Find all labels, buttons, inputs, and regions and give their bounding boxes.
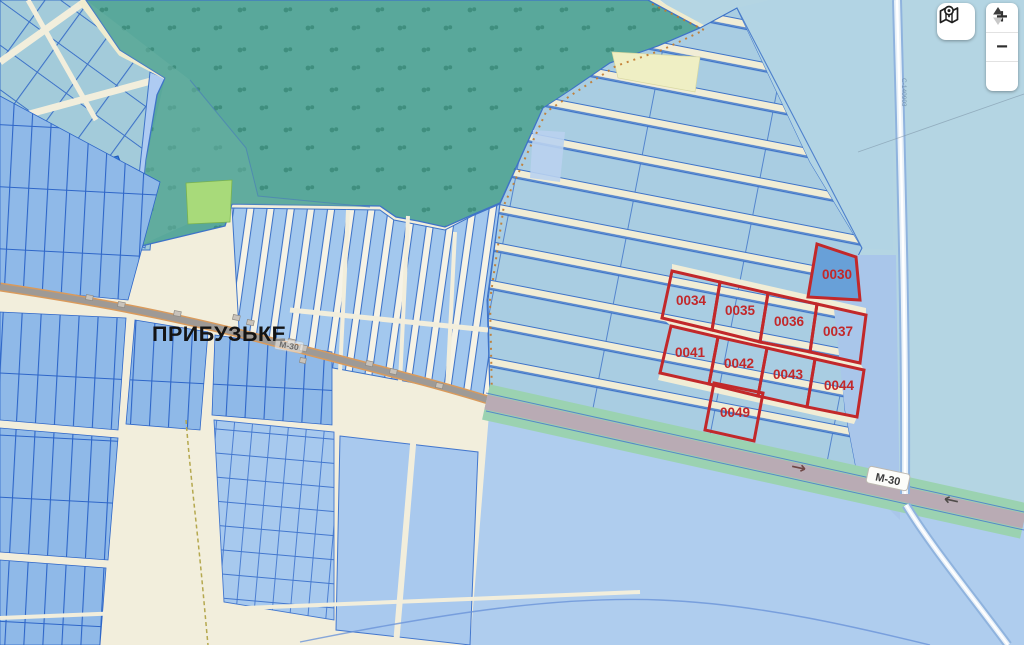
parcel-label: 0049 xyxy=(720,405,750,420)
side-road-label: С-140903 xyxy=(900,78,907,107)
zoom-out-button[interactable]: − xyxy=(986,33,1018,62)
zoom-control: + − xyxy=(986,3,1018,91)
parcel-label: 0035 xyxy=(725,303,756,318)
map-overview-button[interactable] xyxy=(937,3,975,40)
parcel-label: 0034 xyxy=(676,293,707,308)
map-location-icon xyxy=(937,3,961,27)
cadastral-map[interactable]: 0030 0034 0035 0036 0037 0041 0042 0043 … xyxy=(0,0,1024,645)
parcel-label: 0043 xyxy=(773,367,804,382)
green-field xyxy=(186,180,232,224)
parcel-label: 0037 xyxy=(823,324,853,339)
parcel-label: 0030 xyxy=(822,267,852,282)
garden-grid-block xyxy=(214,420,334,620)
parcel-label: 0044 xyxy=(824,378,855,393)
parcel-label: 0041 xyxy=(675,345,706,360)
tilt-control-button[interactable] xyxy=(986,62,1018,91)
up-down-arrows-icon xyxy=(986,3,1010,29)
map-canvas[interactable]: 0030 0034 0035 0036 0037 0041 0042 0043 … xyxy=(0,0,1024,645)
parcel-label: 0042 xyxy=(724,356,754,371)
place-label: ПРИБУЗЬКЕ xyxy=(152,322,286,346)
parcel-label: 0036 xyxy=(774,314,805,329)
